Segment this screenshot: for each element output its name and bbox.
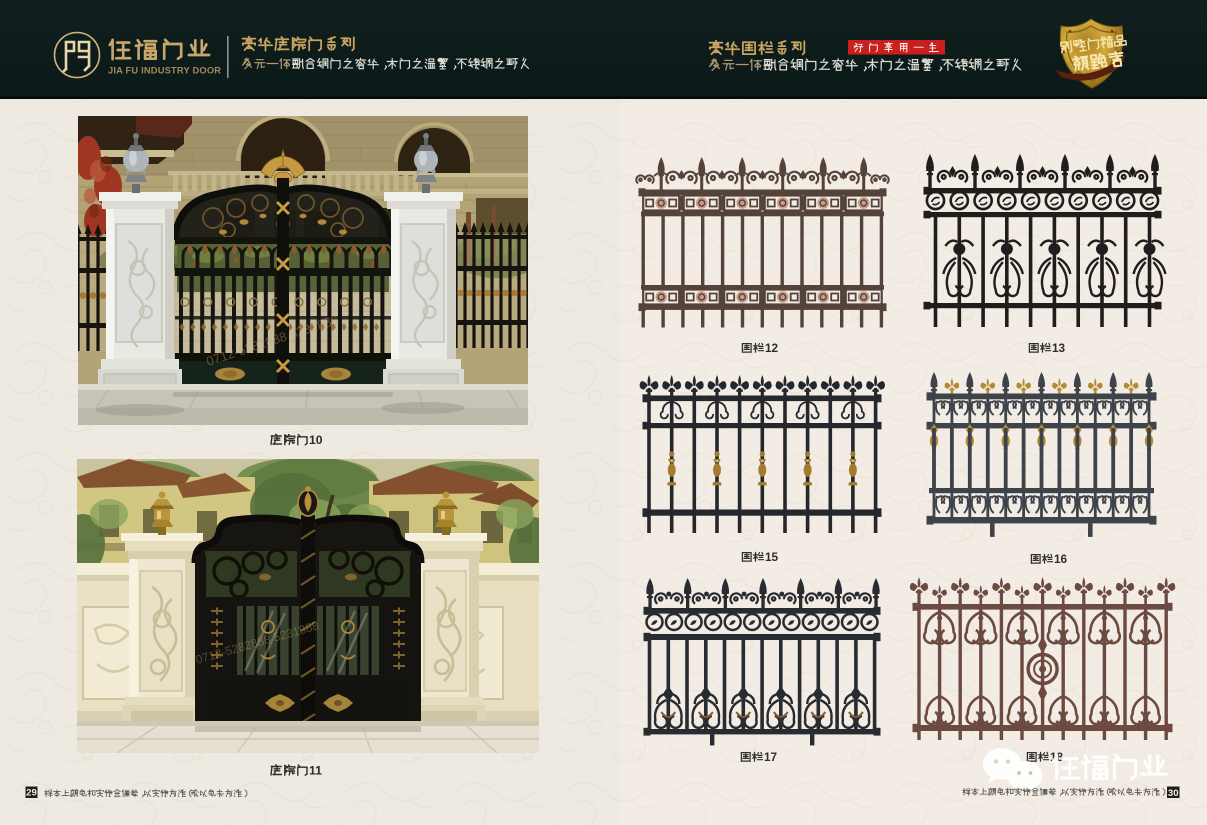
svg-text:30: 30: [1168, 788, 1179, 799]
svg-text:10: 10: [309, 433, 323, 447]
svg-text:12: 12: [765, 341, 779, 355]
svg-text:17: 17: [764, 750, 778, 764]
svg-text:11: 11: [309, 764, 322, 778]
svg-text:JIA FU INDUSTRY DOOR: JIA FU INDUSTRY DOOR: [108, 66, 221, 76]
svg-text:29: 29: [26, 788, 37, 799]
svg-text:16: 16: [1054, 552, 1068, 566]
svg-text:15: 15: [765, 550, 779, 564]
svg-text:13: 13: [1052, 341, 1066, 355]
